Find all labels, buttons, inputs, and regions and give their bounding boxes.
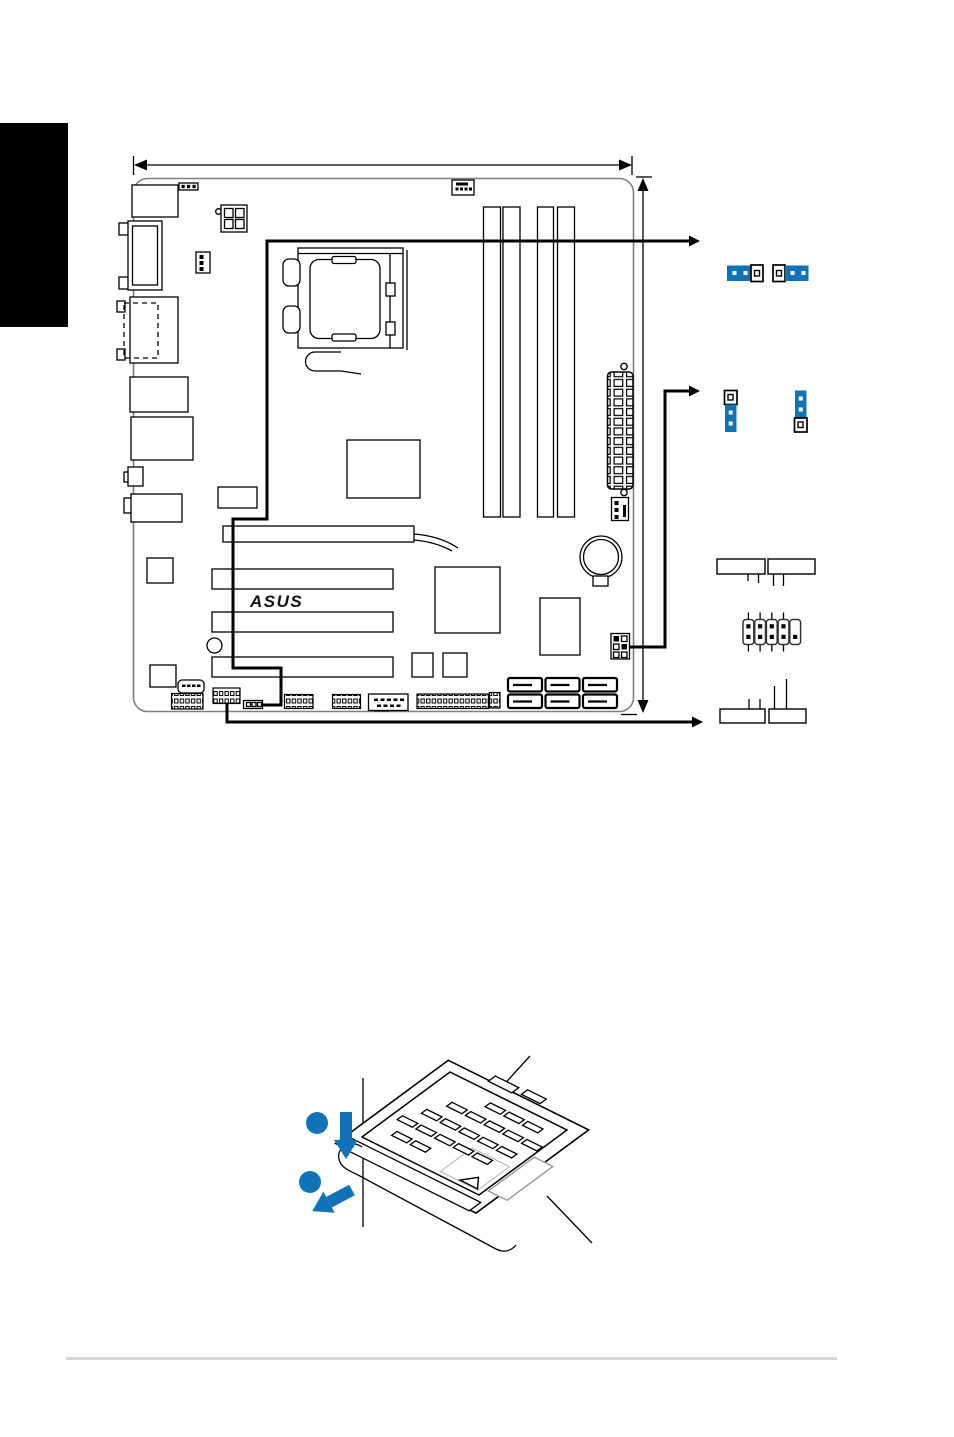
front-audio-header — [172, 694, 204, 710]
system-panel-plug-diagram — [743, 613, 801, 652]
audio-ports — [131, 417, 193, 460]
parallel-port — [130, 297, 178, 363]
cpu-socket-figure — [270, 1030, 650, 1300]
step-annotations — [299, 1112, 358, 1222]
pci-slot-2 — [212, 612, 393, 632]
system-panel-header — [417, 694, 489, 709]
chassis-fan-connector-top — [452, 180, 474, 195]
com-port-header — [369, 694, 409, 711]
chassis-fan-connector-bottom — [178, 680, 204, 693]
atx12v-connector — [216, 205, 247, 232]
cpu-fan-connector — [196, 252, 210, 273]
usb-power-callout — [629, 391, 689, 647]
power-led-header — [179, 183, 198, 190]
footer-rule — [66, 1357, 837, 1360]
width-dimension-arrow — [134, 156, 633, 175]
spdif-header — [213, 688, 240, 704]
clrtc-jumper-settings — [727, 265, 809, 282]
jumper-5vsb — [795, 391, 808, 433]
power-fan-connector — [612, 498, 629, 521]
usb-power-jumper-block — [611, 634, 630, 660]
jumper-normal — [727, 265, 763, 282]
clrtc-jumper — [244, 701, 263, 709]
northbridge-chip — [347, 440, 420, 498]
asus-logo: ASUS — [249, 592, 303, 611]
step-2-badge — [299, 1171, 321, 1193]
jumper-clear-rtc — [773, 265, 809, 282]
jumper-5v — [725, 391, 738, 433]
socket-body — [335, 1054, 605, 1217]
motherboard-layout-figure: ASUS — [60, 140, 954, 740]
step-1-badge — [306, 1112, 328, 1134]
usb-header-1 — [285, 695, 314, 709]
chapter-tab — [0, 123, 68, 327]
usb-wake-jumper-settings — [725, 391, 808, 433]
pci-slot-1 — [212, 569, 393, 589]
fan-plug-diagram-lower — [720, 679, 806, 723]
southbridge-chip — [435, 567, 500, 633]
usb-header-2 — [333, 695, 361, 709]
atx-power-connector — [608, 363, 634, 495]
lan-port — [130, 377, 188, 412]
fan-plug-diagram-upper — [717, 559, 815, 586]
manual-page: ASUS — [0, 0, 954, 1437]
pcie-x16-slot — [223, 526, 414, 542]
ps2-port — [132, 185, 178, 217]
